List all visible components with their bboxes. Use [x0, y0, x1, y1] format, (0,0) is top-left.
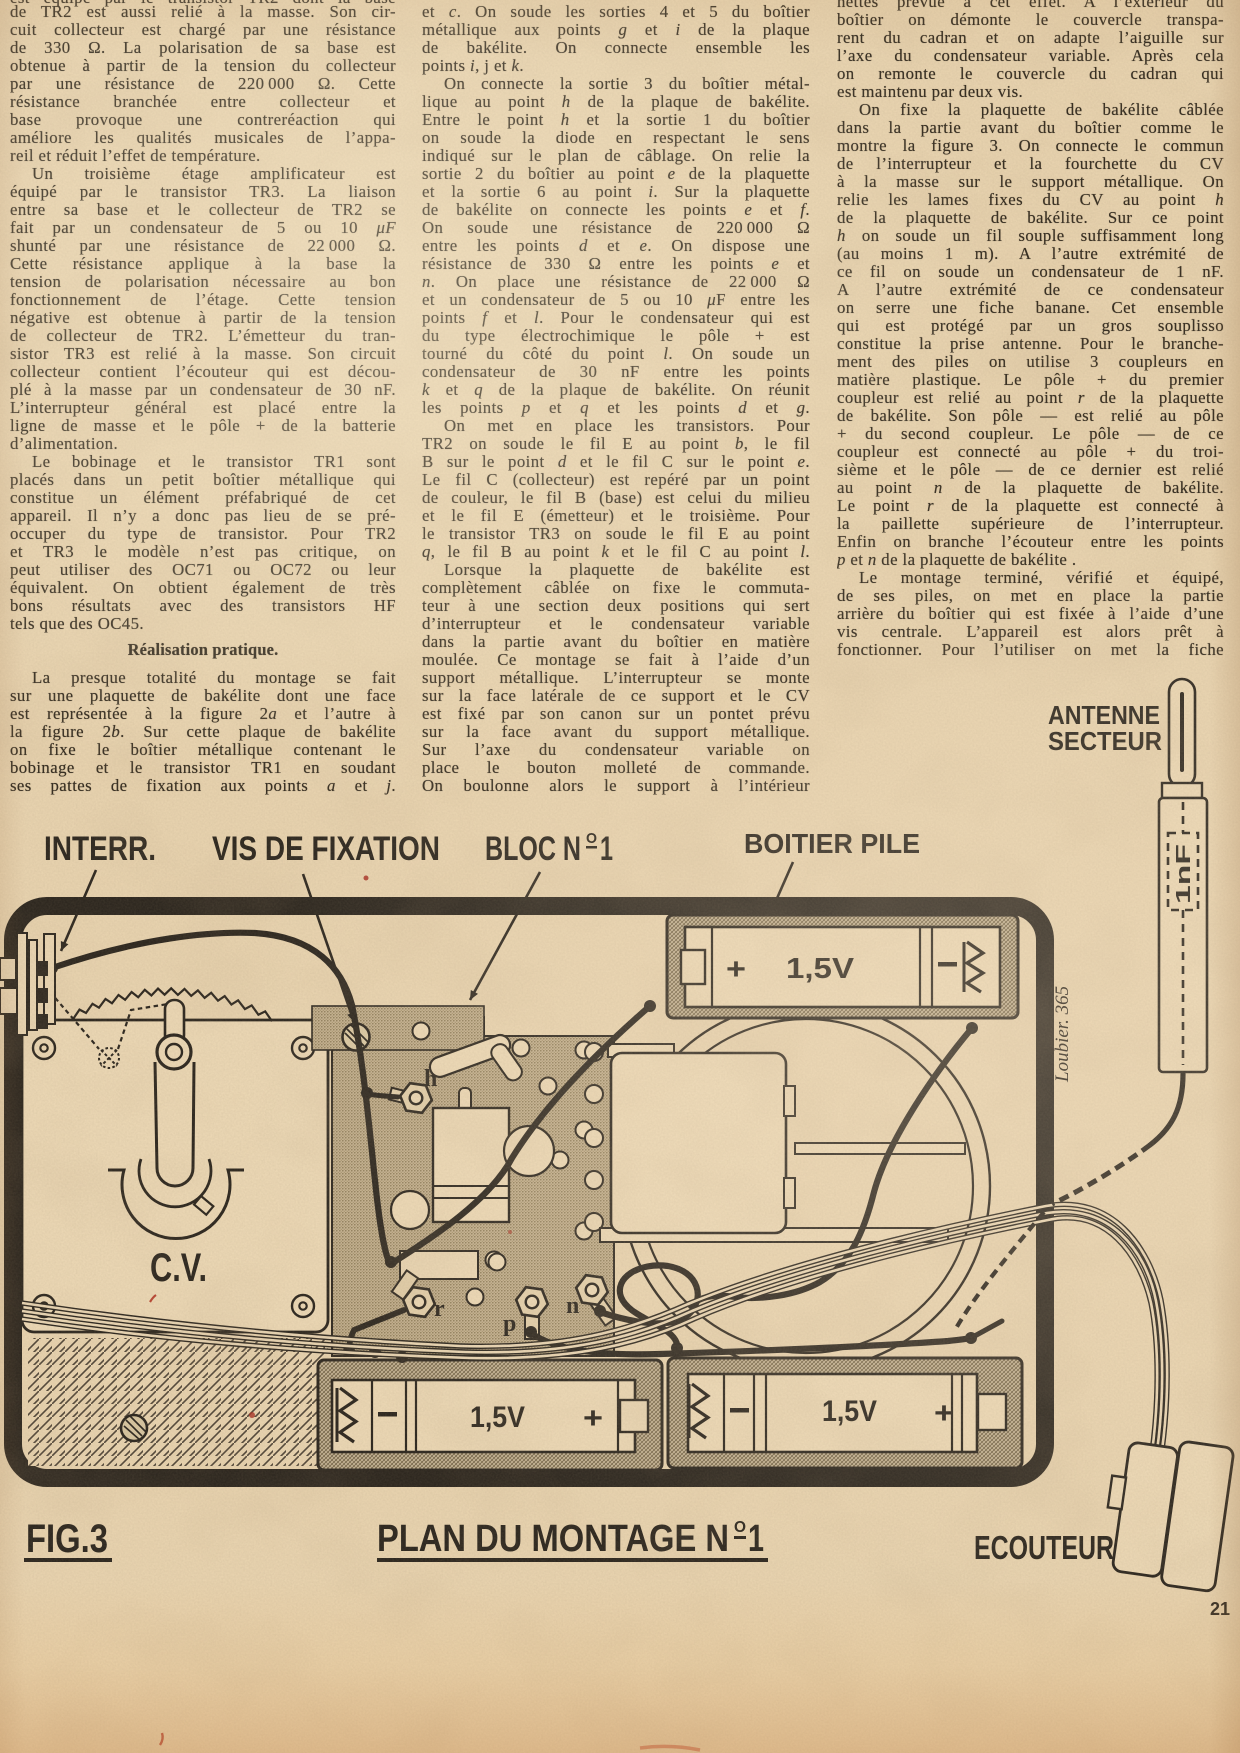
- svg-text:1,5V: 1,5V: [786, 953, 855, 985]
- svg-text:BLOC N: BLOC N: [485, 830, 581, 868]
- svg-text:+: +: [726, 953, 746, 986]
- svg-text:1,5V: 1,5V: [822, 1395, 877, 1428]
- svg-text:C.V.: C.V.: [150, 1246, 207, 1290]
- svg-text:INTERR.: INTERR.: [44, 830, 156, 868]
- svg-text:FIG.3: FIG.3: [26, 1517, 108, 1561]
- svg-text:O: O: [734, 1519, 746, 1536]
- svg-text:SECTEUR: SECTEUR: [1048, 726, 1162, 756]
- svg-text:1: 1: [600, 830, 613, 868]
- svg-text:O: O: [586, 830, 597, 847]
- svg-text:n: n: [566, 1293, 579, 1319]
- svg-text:VIS DE FIXATION: VIS DE FIXATION: [212, 830, 440, 868]
- svg-text:p: p: [503, 1311, 516, 1337]
- svg-text:1: 1: [748, 1518, 764, 1560]
- svg-text:Loubier. 365: Loubier. 365: [1052, 986, 1073, 1083]
- svg-text:r: r: [434, 1296, 445, 1322]
- svg-text:PLAN DU MONTAGE N: PLAN DU MONTAGE N: [377, 1518, 729, 1560]
- svg-text:BOITIER PILE: BOITIER PILE: [744, 828, 920, 859]
- svg-text:1,5V: 1,5V: [470, 1401, 525, 1434]
- svg-text:h: h: [424, 1066, 437, 1092]
- svg-text:+: +: [934, 1397, 954, 1430]
- svg-text:1nF: 1nF: [1173, 844, 1195, 904]
- svg-text:21: 21: [1210, 1599, 1230, 1619]
- svg-text:+: +: [583, 1402, 603, 1435]
- svg-text:ECOUTEUR: ECOUTEUR: [974, 1529, 1114, 1566]
